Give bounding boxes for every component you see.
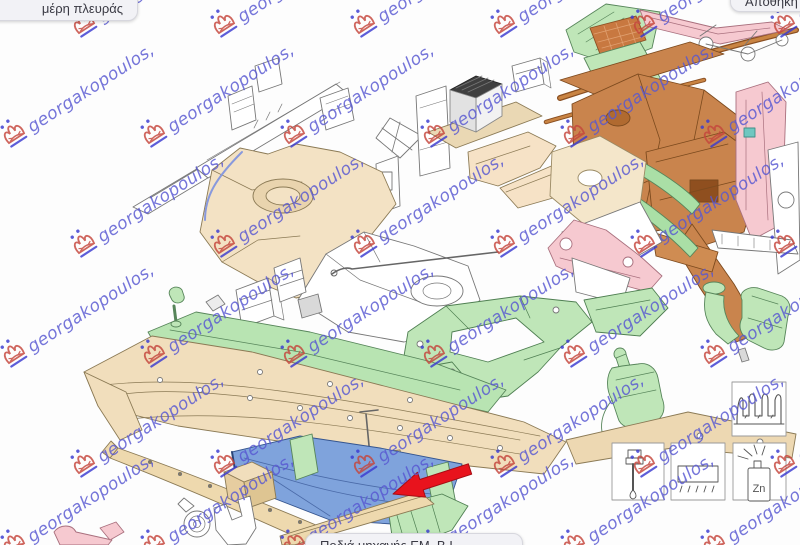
legend-box-zinc-spray[interactable]: Zn [733,443,786,501]
exploded-parts-diagram: Zn [0,0,800,545]
tooltip-top-right-text: Αποθήκη [745,0,798,9]
legend-box-section-profile[interactable] [732,382,786,436]
tooltip-top-left: μέρη πλευράς [0,0,138,21]
legend-box-trim-strip[interactable] [671,443,725,500]
zn-label: Zn [753,483,766,495]
tooltip-bottom-text: Ποδιά μηχανής ΕΜ. Β.Ι. [320,538,456,545]
tooltip-top-left-text: μέρη πλευράς [42,1,123,16]
legend-box-sealant-applicator[interactable] [612,443,664,500]
filler-neck-and-canister[interactable] [703,282,790,362]
parts-catalog-page: Zn μέρη πλευράς Αποθήκη Ποδιά μηχανής ΕΜ… [0,0,800,545]
tooltip-top-right: Αποθήκη [730,0,800,12]
tooltip-bottom: Ποδιά μηχανής ΕΜ. Β.Ι. [305,533,523,545]
